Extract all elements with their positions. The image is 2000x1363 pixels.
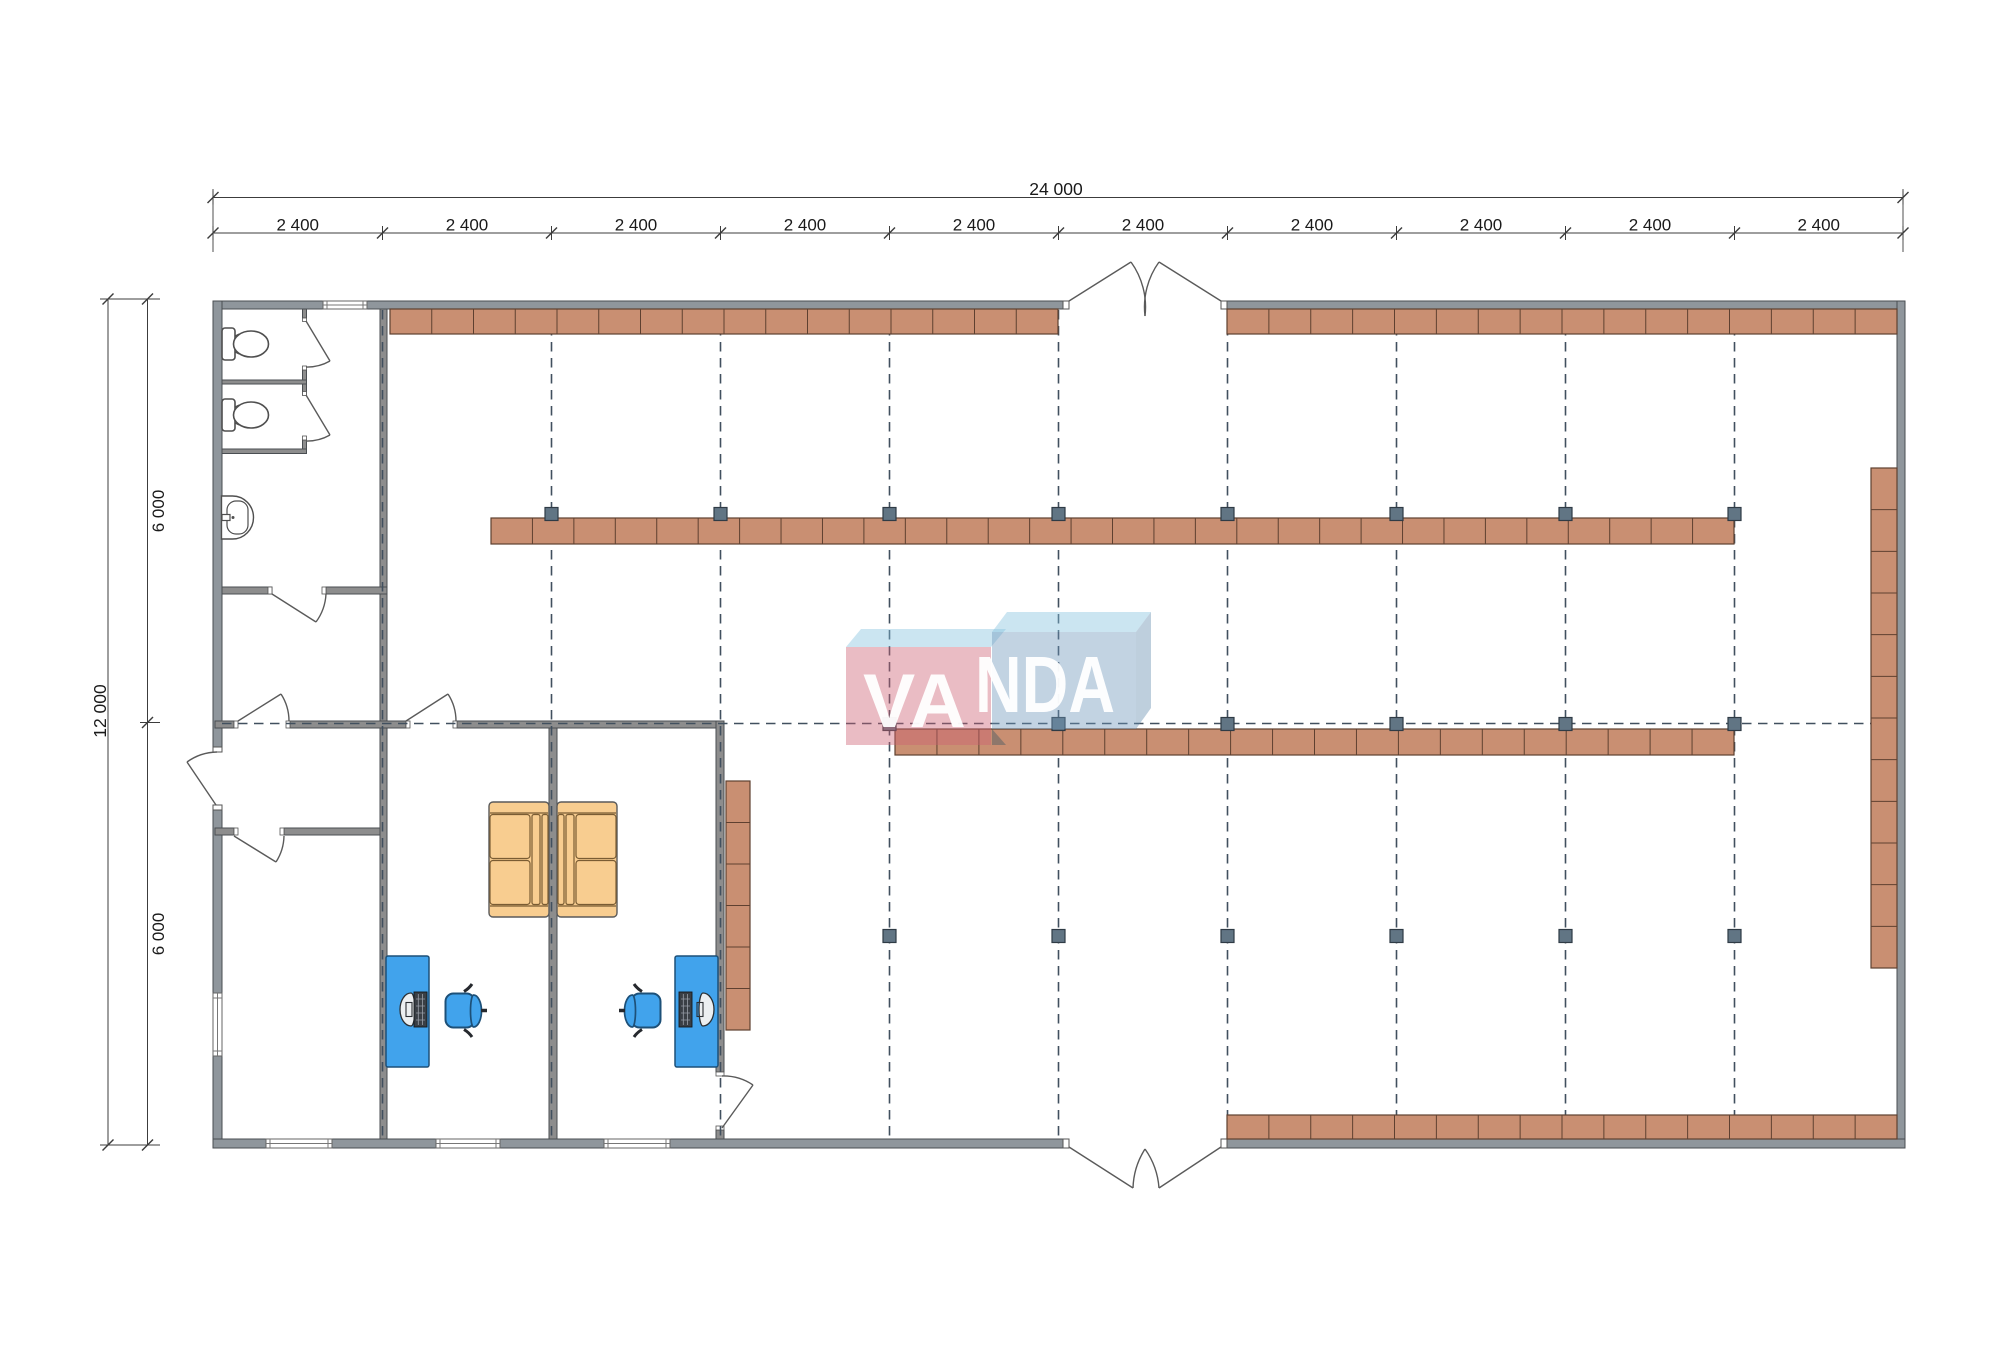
svg-text:2 400: 2 400: [1460, 216, 1503, 235]
svg-text:24 000: 24 000: [1029, 179, 1083, 199]
svg-text:2 400: 2 400: [446, 216, 489, 235]
svg-text:2 400: 2 400: [953, 216, 996, 235]
svg-text:2 400: 2 400: [1797, 216, 1840, 235]
svg-text:2 400: 2 400: [1291, 216, 1334, 235]
svg-text:2 400: 2 400: [615, 216, 658, 235]
svg-text:12 000: 12 000: [90, 684, 110, 738]
svg-text:2 400: 2 400: [276, 216, 319, 235]
svg-text:VA: VA: [863, 659, 966, 744]
svg-text:NDA: NDA: [975, 640, 1115, 729]
svg-text:6 000: 6 000: [149, 913, 168, 956]
svg-text:2 400: 2 400: [1122, 216, 1165, 235]
svg-text:2 400: 2 400: [1629, 216, 1672, 235]
svg-text:2 400: 2 400: [784, 216, 827, 235]
svg-text:6 000: 6 000: [149, 490, 168, 533]
